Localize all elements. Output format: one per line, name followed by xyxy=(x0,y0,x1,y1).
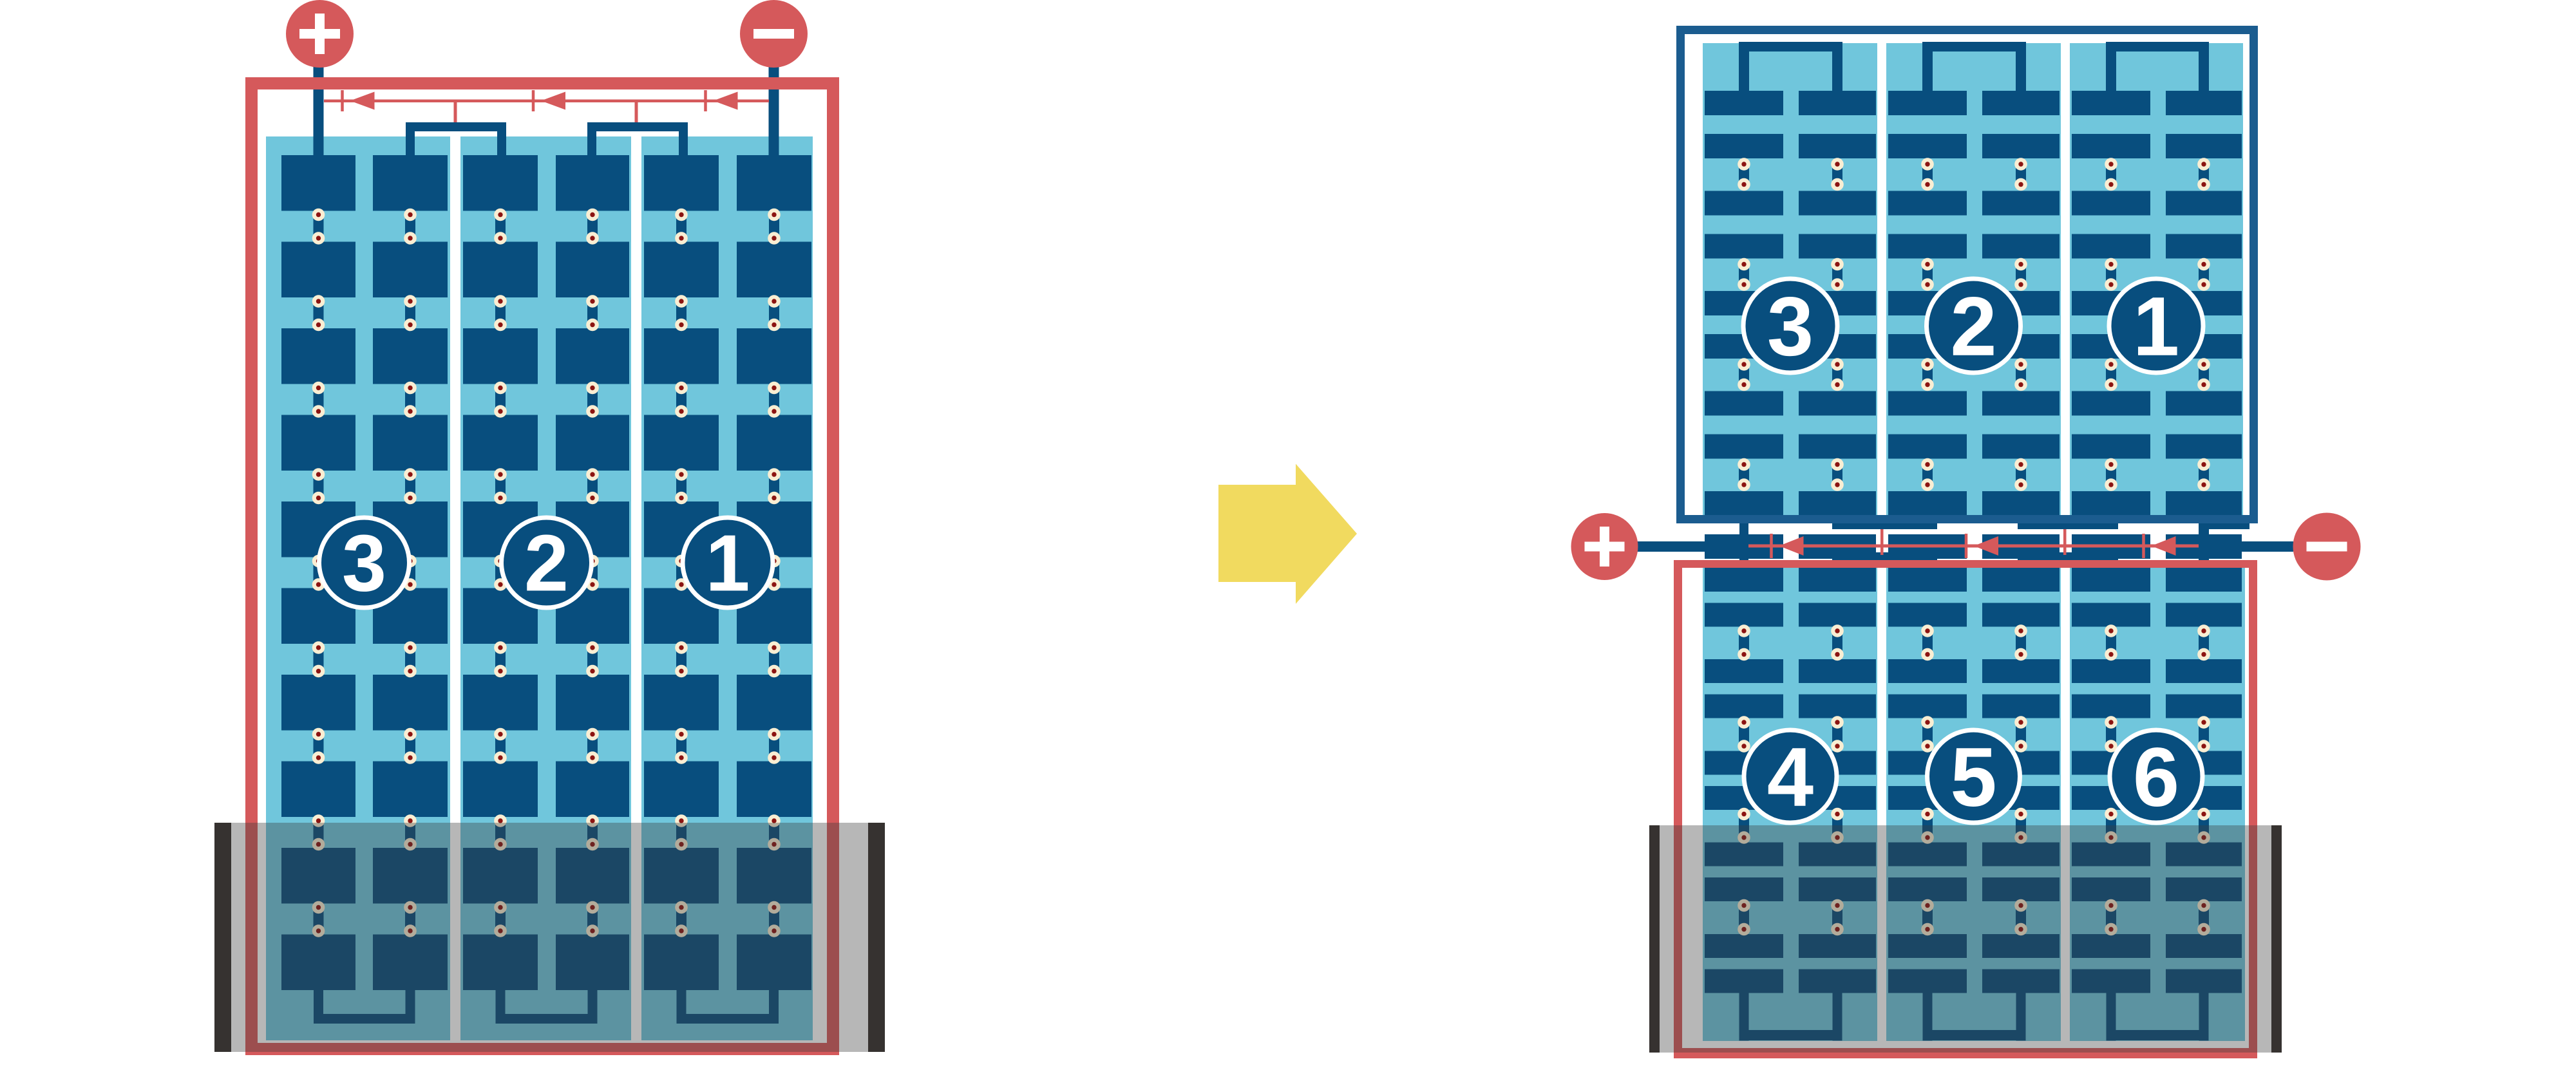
svg-text:1: 1 xyxy=(2133,279,2179,373)
svg-text:3: 3 xyxy=(1767,279,1814,373)
svg-text:5: 5 xyxy=(1950,730,1996,824)
svg-text:1: 1 xyxy=(706,520,750,608)
svg-text:6: 6 xyxy=(2133,730,2179,824)
svg-text:3: 3 xyxy=(342,520,386,608)
svg-text:4: 4 xyxy=(1767,730,1814,824)
svg-text:2: 2 xyxy=(524,520,569,608)
svg-text:2: 2 xyxy=(1950,279,1996,373)
